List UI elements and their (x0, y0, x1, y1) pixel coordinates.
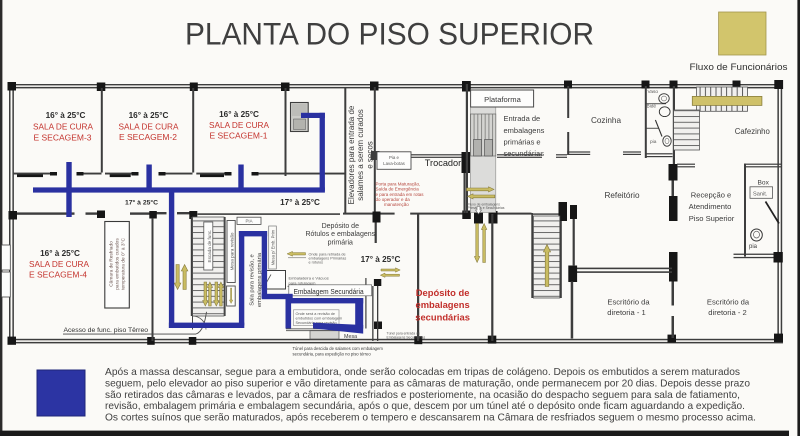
svg-text:Recepção e: Recepção e (691, 191, 732, 200)
svg-text:Câmara de Resfriado: Câmara de Resfriado (109, 241, 115, 287)
svg-text:diretoria - 2: diretoria - 2 (708, 308, 746, 317)
svg-text:E SECAGEM-3: E SECAGEM-3 (34, 134, 93, 143)
svg-text:Trocador: Trocador (425, 158, 461, 168)
svg-text:16° à 25°C: 16° à 25°C (46, 111, 86, 120)
svg-text:secundárias: secundárias (415, 312, 470, 323)
svg-text:Cafezinho: Cafezinho (735, 127, 771, 136)
svg-text:Depósito de: Depósito de (322, 223, 359, 230)
svg-text:e rótulos: e rótulos (309, 261, 324, 265)
svg-text:embalagens: embalagens (415, 299, 469, 310)
svg-text:Mesa: Mesa (344, 334, 357, 340)
svg-text:primária: primária (328, 239, 353, 246)
svg-text:secundárias: secundárias (504, 149, 545, 158)
svg-text:SALA DE CURA: SALA DE CURA (119, 123, 180, 132)
svg-text:E SECAGEM-4: E SECAGEM-4 (29, 271, 88, 280)
svg-text:Onde será a revisão de: Onde será a revisão de (296, 312, 335, 316)
svg-text:PIA: PIA (245, 219, 252, 224)
svg-text:17° à 25°C: 17° à 25°C (361, 255, 401, 264)
svg-text:Mesa p/ Emb. Prim: Mesa p/ Emb. Prim (271, 229, 276, 265)
svg-text:Acesso de func. piso Têrreo: Acesso de func. piso Têrreo (64, 327, 149, 334)
svg-text:revisão, embalagem primária e: revisão, embalagem primária e embalagem … (105, 401, 745, 412)
svg-text:Túnel para descida de salames: Túnel para descida de salames com embala… (293, 346, 384, 351)
svg-text:16° à 25°C: 16° à 25°C (219, 110, 259, 119)
svg-text:e secos: e secos (365, 141, 374, 169)
svg-text:SALA DE CURA: SALA DE CURA (33, 123, 94, 132)
svg-text:pia: pia (650, 139, 657, 145)
svg-text:Atendimento: Atendimento (689, 202, 732, 211)
svg-text:Embalagens Secundárias: Embalagens Secundárias (387, 335, 426, 339)
svg-text:Fluxo de Funcionários: Fluxo de Funcionários (690, 61, 788, 72)
svg-text:Box: Box (758, 180, 770, 187)
svg-text:secundária, para expedição no: secundária, para expedição no piso térre… (293, 351, 372, 356)
svg-text:Sanit.: Sanit. (753, 191, 768, 197)
svg-text:embalagens: embalagens (504, 126, 545, 135)
svg-text:Elevadores para entrada de: Elevadores para entrada de (347, 105, 356, 204)
svg-text:Lava-botas: Lava-botas (383, 161, 406, 166)
svg-text:Vaso: Vaso (648, 89, 659, 95)
svg-text:salames a serem curados: salames a serem curados (356, 109, 365, 201)
svg-text:temperatura de 0° à 3°C: temperatura de 0° à 3°C (121, 238, 127, 290)
svg-text:Entrada de: Entrada de (504, 114, 541, 123)
svg-text:Rótulos e embalagens: Rótulos e embalagens (305, 231, 375, 238)
svg-text:Bidê: Bidê (647, 104, 657, 110)
svg-text:Piso Superior: Piso Superior (689, 214, 735, 223)
svg-text:Após a massa descansar, segue: Após a massa descansar, segue para a emb… (105, 367, 740, 378)
svg-text:Escada de func.: Escada de func. (207, 230, 212, 263)
svg-text:Mesa para revisão: Mesa para revisão (229, 232, 234, 270)
svg-text:PLANTA DO PISO SUPERIOR: PLANTA DO PISO SUPERIOR (185, 16, 594, 52)
svg-text:embutidos com embalagem: embutidos com embalagem (296, 317, 343, 321)
svg-text:Escritório da: Escritório da (607, 298, 650, 307)
svg-text:pia: pia (749, 244, 758, 250)
svg-text:Sala para revisão, e: Sala para revisão, e (249, 254, 255, 306)
svg-text:17° à 25°C: 17° à 25°C (125, 198, 158, 206)
svg-text:SALA DE CURA: SALA DE CURA (29, 260, 90, 269)
svg-text:Cozinha: Cozinha (591, 116, 621, 125)
svg-text:primárias e: primárias e (504, 138, 541, 147)
svg-text:diretoria - 1: diretoria - 1 (607, 308, 645, 317)
svg-text:são retirados das câmaras e le: são retirados das câmaras e levados, par… (105, 390, 740, 401)
svg-text:16° à 25°C: 16° à 25°C (40, 249, 80, 258)
svg-text:17° à 25°C: 17° à 25°C (280, 198, 320, 207)
svg-text:para embutidos curados: para embutidos curados (115, 238, 121, 290)
svg-text:seguem, pelo elevador ao piso: seguem, pelo elevador ao piso superior e… (105, 378, 750, 389)
svg-text:E SECAGEM-1: E SECAGEM-1 (210, 132, 269, 141)
svg-text:Embalagem Secundária: Embalagem Secundária (294, 289, 364, 296)
svg-text:Os cortes suínos que serão mat: Os cortes suínos que serão maturados, ap… (105, 413, 756, 424)
svg-text:16° à 25°C: 16° à 25°C (129, 111, 169, 120)
svg-text:E SECAGEM-2: E SECAGEM-2 (119, 133, 178, 142)
svg-text:Refeitório: Refeitório (604, 191, 639, 200)
svg-text:manutenção: manutenção (384, 202, 409, 207)
svg-text:Primárias e Secundárias: Primárias e Secundárias (468, 206, 505, 210)
svg-text:Depósito de: Depósito de (416, 287, 470, 298)
svg-text:SALA DE CURA: SALA DE CURA (209, 121, 270, 130)
svg-text:Escritório da: Escritório da (707, 298, 750, 307)
svg-text:Plataforma: Plataforma (484, 95, 521, 104)
svg-text:Pia e: Pia e (389, 155, 400, 160)
